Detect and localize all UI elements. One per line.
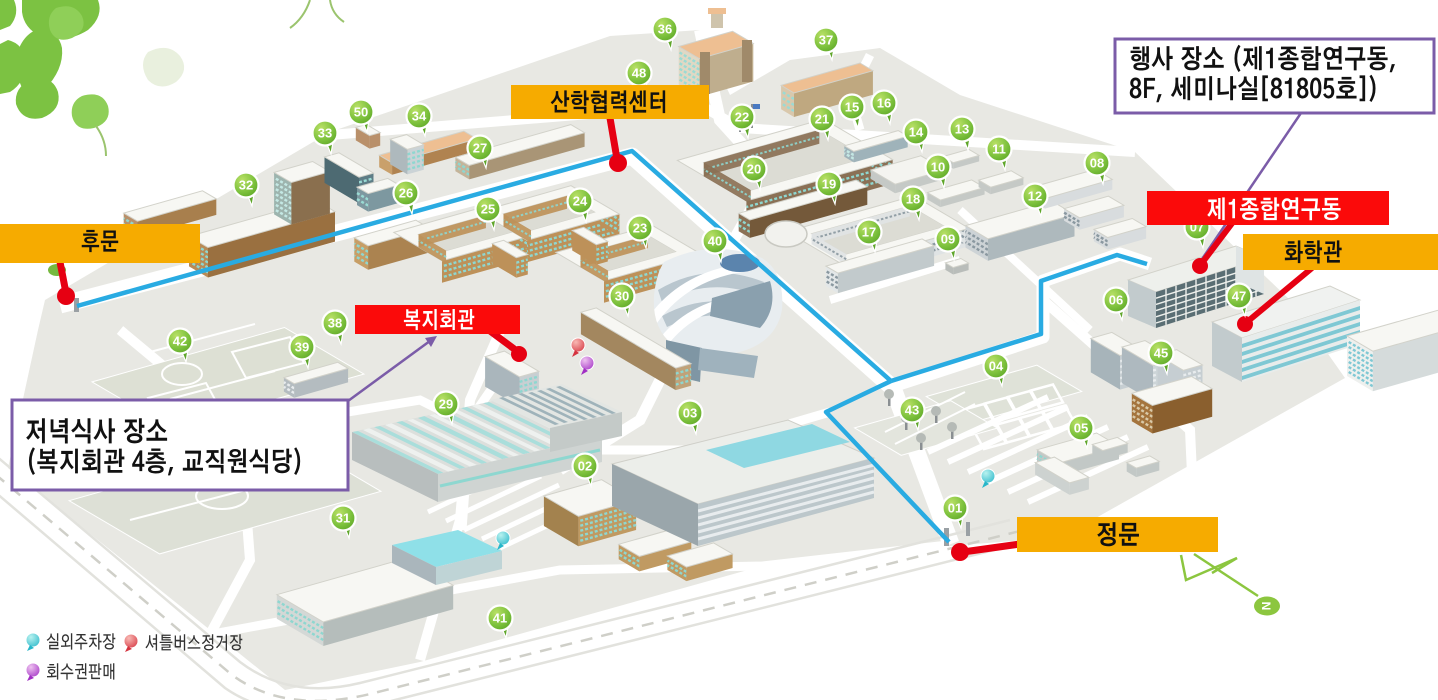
- svg-text:15: 15: [845, 100, 859, 115]
- svg-text:04: 04: [989, 359, 1004, 374]
- svg-text:22: 22: [735, 110, 749, 125]
- svg-text:41: 41: [493, 611, 507, 626]
- svg-text:34: 34: [412, 109, 427, 124]
- svg-text:10: 10: [931, 160, 945, 175]
- svg-text:17: 17: [862, 225, 876, 240]
- svg-text:12: 12: [1028, 189, 1042, 204]
- svg-text:45: 45: [1154, 346, 1168, 361]
- svg-text:30: 30: [615, 289, 629, 304]
- svg-text:24: 24: [573, 194, 588, 209]
- svg-text:40: 40: [708, 234, 722, 249]
- svg-text:14: 14: [909, 125, 924, 140]
- svg-text:32: 32: [239, 178, 253, 193]
- svg-text:03: 03: [683, 406, 697, 421]
- svg-text:21: 21: [815, 112, 829, 127]
- svg-text:09: 09: [941, 232, 955, 247]
- svg-text:39: 39: [295, 340, 309, 355]
- svg-text:13: 13: [955, 122, 969, 137]
- svg-text:08: 08: [1090, 156, 1104, 171]
- svg-text:11: 11: [992, 142, 1006, 157]
- svg-text:31: 31: [336, 511, 350, 526]
- svg-text:37: 37: [819, 33, 833, 48]
- svg-text:23: 23: [633, 221, 647, 236]
- svg-text:36: 36: [658, 22, 672, 37]
- svg-text:01: 01: [948, 501, 962, 516]
- svg-text:26: 26: [399, 186, 413, 201]
- svg-text:38: 38: [328, 316, 342, 331]
- svg-text:19: 19: [822, 177, 836, 192]
- svg-text:33: 33: [318, 126, 332, 141]
- svg-text:47: 47: [1232, 289, 1246, 304]
- svg-text:05: 05: [1074, 421, 1088, 436]
- svg-text:29: 29: [439, 397, 453, 412]
- svg-text:N: N: [1259, 602, 1273, 611]
- svg-text:20: 20: [747, 162, 761, 177]
- svg-text:48: 48: [632, 66, 646, 81]
- svg-text:16: 16: [877, 96, 891, 111]
- svg-text:18: 18: [906, 192, 920, 207]
- svg-text:42: 42: [173, 334, 187, 349]
- svg-text:50: 50: [354, 105, 368, 120]
- svg-text:25: 25: [481, 202, 495, 217]
- svg-text:27: 27: [473, 141, 487, 156]
- svg-text:02: 02: [578, 459, 592, 474]
- svg-text:43: 43: [905, 403, 919, 418]
- svg-text:06: 06: [1109, 293, 1123, 308]
